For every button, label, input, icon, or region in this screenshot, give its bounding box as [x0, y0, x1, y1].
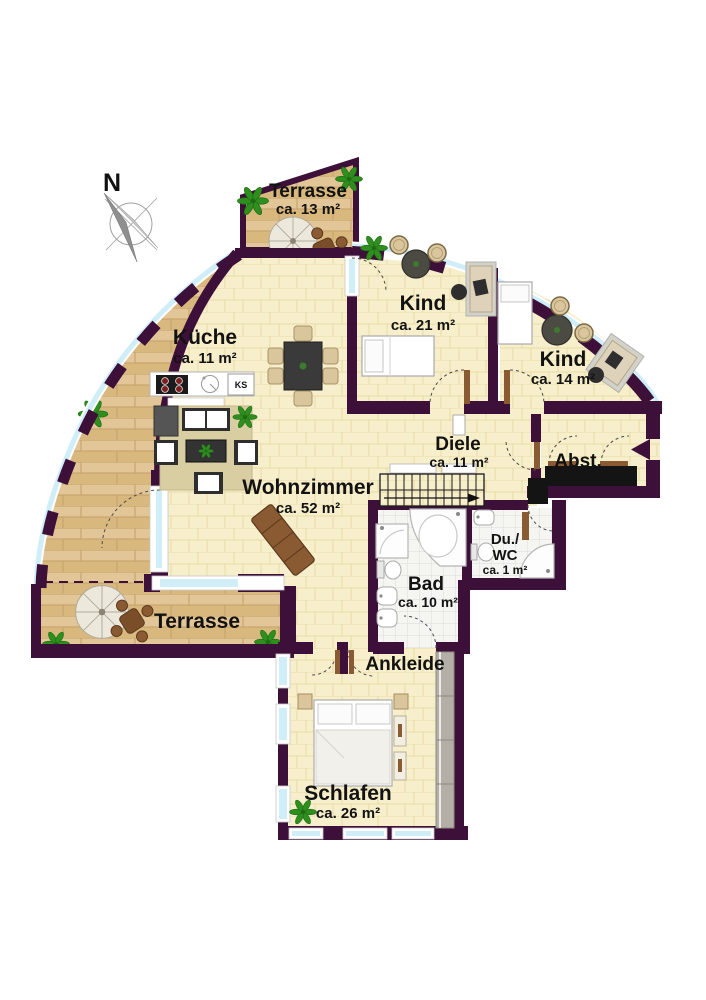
bed-icon — [498, 282, 532, 344]
bed-icon — [362, 336, 434, 376]
pouf-icon — [575, 324, 593, 342]
nightstand-icon — [298, 694, 312, 709]
label-diele: Diele — [435, 434, 480, 455]
label-bad-area: ca. 10 m² — [398, 594, 458, 610]
label-wohnzimmer-area: ca. 52 m² — [276, 500, 340, 517]
double-bed-icon — [314, 700, 392, 786]
floor-plan-canvas: KS — [0, 0, 706, 1000]
label-kind-gross-area: ca. 21 m² — [391, 317, 455, 334]
label-kind-klein-area: ca. 14 m² — [531, 371, 595, 388]
fridge-box: KS — [228, 374, 254, 395]
cooktop-icon — [156, 375, 188, 394]
shower-icon — [376, 524, 408, 558]
terrace-door-wohnzimmer — [150, 486, 168, 572]
label-schlafen: Schlafen — [304, 782, 392, 805]
compass-north-label: N — [103, 169, 121, 197]
label-kind-klein: Kind — [540, 348, 587, 371]
label-bad: Bad — [408, 574, 444, 595]
compass-icon: N — [103, 169, 158, 262]
closet-icon — [394, 716, 406, 746]
window-schlafen-sued — [289, 828, 434, 839]
terrace-door-kind — [345, 256, 359, 296]
kitchen-sink-icon — [202, 376, 219, 393]
toilet-icon — [377, 561, 401, 579]
label-du-wc-1: Du./ — [491, 531, 520, 548]
label-diele-area: ca. 11 m² — [429, 454, 488, 470]
radiator-icon — [453, 415, 465, 435]
label-ankleide: Ankleide — [365, 654, 444, 675]
pouf-icon — [428, 244, 446, 262]
wardrobe-icon — [436, 652, 454, 828]
label-terrasse-top: Terrasse — [269, 181, 347, 202]
pouf-icon — [390, 236, 408, 254]
tv-sideboard-icon — [154, 406, 178, 436]
label-terrasse-top-area: ca. 13 m² — [276, 201, 340, 218]
label-terrasse-unten: Terrasse — [154, 610, 240, 633]
label-abstellraum: Abst. — [554, 451, 602, 472]
sink-icon — [474, 510, 494, 525]
towel-radiator-icon — [522, 512, 529, 540]
pouf-icon — [551, 297, 569, 315]
label-du-wc-area: ca. 1 m² — [483, 563, 528, 577]
closet-icon — [528, 478, 548, 504]
label-kueche: Küche — [173, 326, 237, 349]
label-wohnzimmer: Wohnzimmer — [242, 476, 373, 499]
nightstand-icon — [394, 694, 408, 709]
desk-chair-icon — [451, 284, 467, 300]
window-wohnzimmer-sued — [152, 576, 284, 590]
closet-icon — [394, 752, 406, 780]
label-du-wc-2: WC — [493, 547, 518, 564]
stairs-icon — [380, 474, 484, 506]
label-schlafen-area: ca. 26 m² — [316, 805, 380, 822]
label-kueche-area: ca. 11 m² — [173, 350, 236, 367]
armchair-icon — [234, 440, 258, 465]
label-kind-gross: Kind — [400, 292, 447, 315]
sofa-icon — [182, 408, 230, 431]
floor-plan: KS — [0, 0, 706, 1000]
armchair-icon — [154, 440, 178, 465]
window-schlafen-west — [276, 654, 290, 822]
fridge-label: KS — [235, 380, 248, 390]
armchair-icon — [194, 472, 223, 494]
